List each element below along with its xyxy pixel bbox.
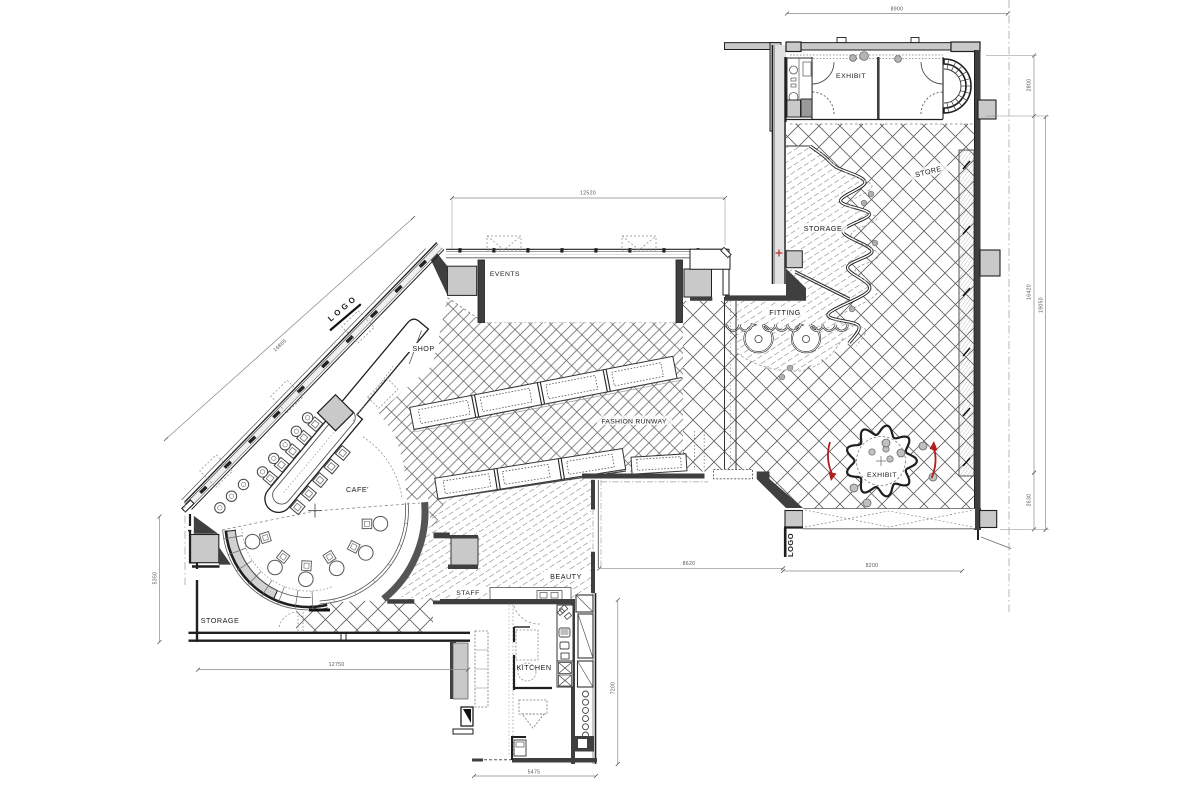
svg-text:19050: 19050 bbox=[1039, 297, 1045, 313]
svg-text:5350: 5350 bbox=[153, 572, 159, 585]
svg-text:STORAGE: STORAGE bbox=[804, 224, 843, 233]
svg-text:12750: 12750 bbox=[329, 662, 345, 668]
svg-text:SHOP: SHOP bbox=[412, 344, 434, 353]
svg-text:BEAUTY: BEAUTY bbox=[550, 572, 582, 581]
svg-text:FASHION RUNWAY: FASHION RUNWAY bbox=[601, 419, 667, 426]
svg-text:12520: 12520 bbox=[580, 191, 596, 197]
svg-text:8620: 8620 bbox=[683, 561, 696, 567]
svg-text:2800: 2800 bbox=[1027, 79, 1033, 92]
svg-text:2630: 2630 bbox=[1027, 494, 1033, 507]
svg-text:LOGO: LOGO bbox=[786, 533, 795, 557]
svg-text:STORAGE: STORAGE bbox=[201, 616, 240, 625]
svg-text:16420: 16420 bbox=[1027, 284, 1033, 300]
svg-text:EXHIBIT: EXHIBIT bbox=[867, 472, 897, 479]
svg-text:EVENTS: EVENTS bbox=[490, 271, 520, 278]
svg-text:CAFE': CAFE' bbox=[346, 485, 369, 494]
svg-text:8200: 8200 bbox=[866, 563, 879, 569]
svg-text:7200: 7200 bbox=[611, 682, 617, 695]
svg-text:8900: 8900 bbox=[891, 7, 904, 13]
svg-text:5475: 5475 bbox=[528, 770, 541, 776]
svg-text:FITTING: FITTING bbox=[769, 308, 800, 317]
svg-text:EXHIBIT: EXHIBIT bbox=[836, 73, 866, 80]
svg-text:STAFF: STAFF bbox=[456, 590, 480, 597]
